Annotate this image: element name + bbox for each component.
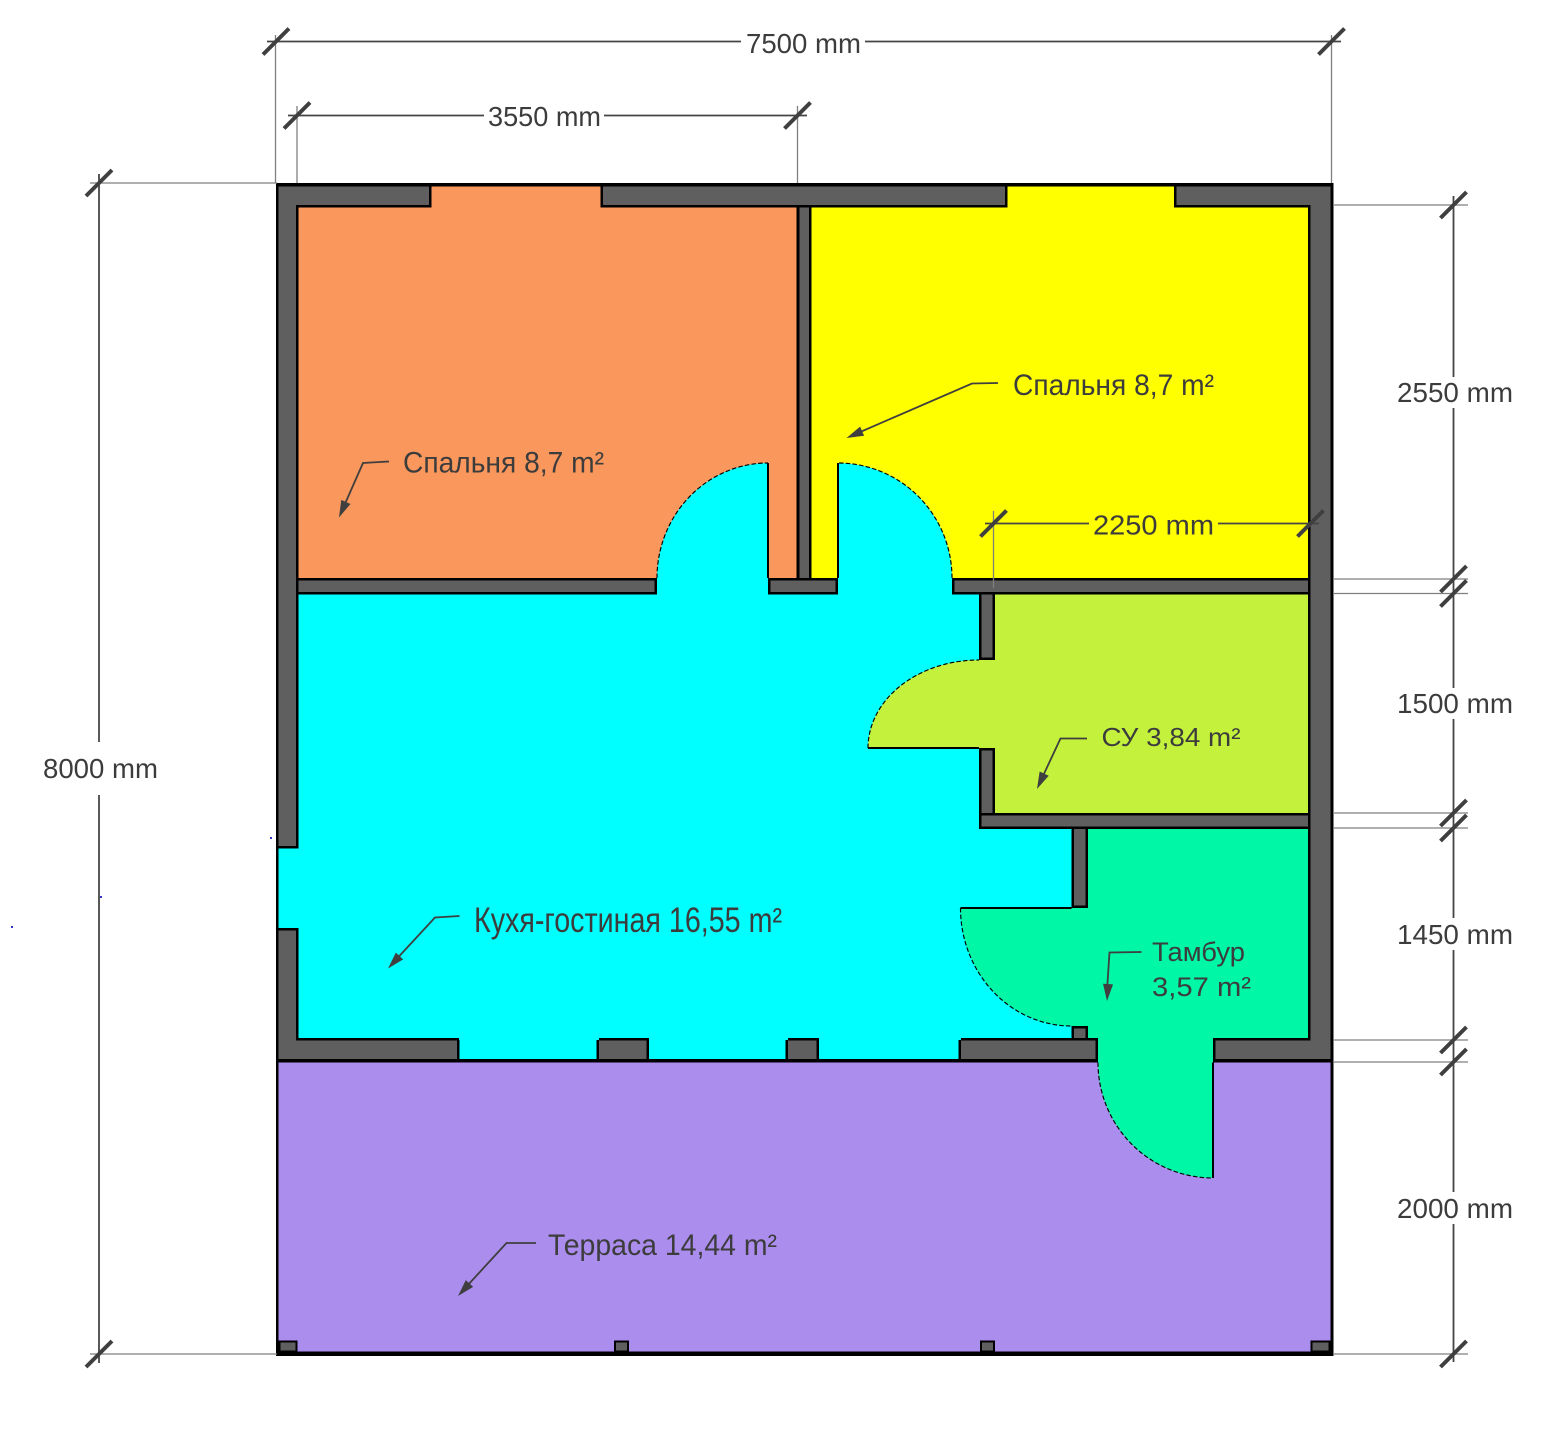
svg-text:7500 mm: 7500 mm bbox=[746, 28, 861, 59]
svg-text:2000 mm: 2000 mm bbox=[1397, 1193, 1513, 1224]
svg-text:1450 mm: 1450 mm bbox=[1397, 919, 1513, 950]
svg-text:СУ 3,84 m²: СУ 3,84 m² bbox=[1102, 722, 1241, 752]
svg-text:Тамбур: Тамбур bbox=[1152, 937, 1245, 967]
svg-text:2550 mm: 2550 mm bbox=[1397, 377, 1513, 408]
svg-text:Терраса 14,44 m²: Терраса 14,44 m² bbox=[548, 1229, 777, 1262]
svg-text:Спальня 8,7 m²: Спальня 8,7 m² bbox=[403, 447, 604, 480]
svg-text:2250 mm: 2250 mm bbox=[1093, 510, 1214, 541]
svg-text:Кухя-гостиная 16,55 m²: Кухя-гостиная 16,55 m² bbox=[474, 901, 782, 940]
svg-text:Спальня 8,7 m²: Спальня 8,7 m² bbox=[1013, 369, 1214, 402]
svg-text:3,57 m²: 3,57 m² bbox=[1152, 972, 1251, 1002]
svg-text:3550 mm: 3550 mm bbox=[488, 101, 601, 132]
svg-text:8000 mm: 8000 mm bbox=[43, 753, 158, 784]
svg-text:1500 mm: 1500 mm bbox=[1397, 688, 1513, 719]
